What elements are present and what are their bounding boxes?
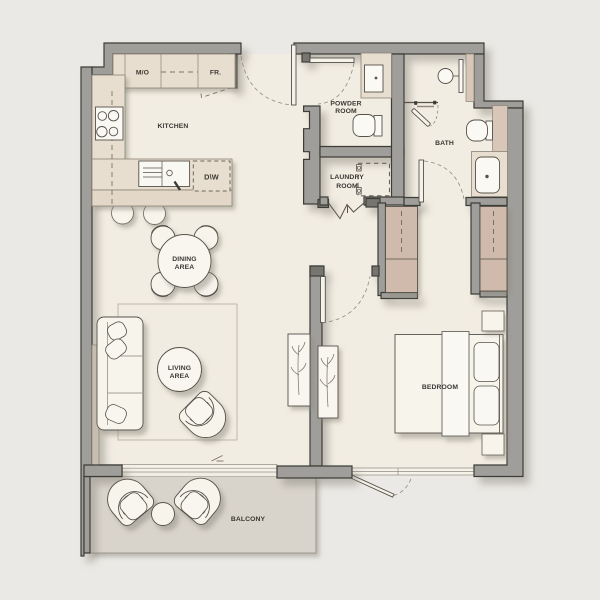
svg-text:ROOM: ROOM — [335, 108, 357, 115]
svg-text:BATH: BATH — [435, 140, 454, 147]
svg-text:FR.: FR. — [210, 70, 221, 77]
svg-text:BALCONY: BALCONY — [231, 516, 266, 523]
svg-text:DINING: DINING — [172, 256, 196, 263]
svg-text:KITCHEN: KITCHEN — [158, 123, 189, 130]
svg-text:LIVING: LIVING — [168, 365, 191, 372]
svg-text:LAUNDRY: LAUNDRY — [330, 174, 364, 181]
svg-text:POWDER: POWDER — [330, 101, 361, 108]
svg-text:BEDROOM: BEDROOM — [422, 384, 458, 391]
svg-text:D\W: D\W — [204, 173, 219, 182]
svg-text:AREA: AREA — [170, 373, 190, 380]
svg-text:AREA: AREA — [175, 264, 195, 271]
svg-text:ROOM: ROOM — [336, 183, 358, 190]
svg-text:M/O: M/O — [136, 70, 149, 77]
